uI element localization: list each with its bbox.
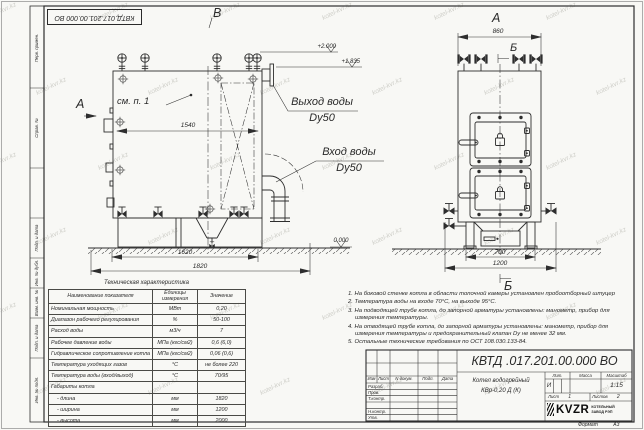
- hinge-icon: [525, 128, 530, 156]
- coil-icon: [547, 403, 554, 416]
- frame-field-perv-primen: Перв. примен.: [30, 8, 44, 88]
- dim-1820: 1820: [180, 264, 220, 271]
- format-label: Формат: [578, 422, 598, 428]
- inlet-label: Вход воды: [314, 147, 384, 158]
- dim-1620: 1620: [165, 250, 205, 257]
- bottom-valve-icons: [117, 207, 248, 218]
- company-name-line1: КОТЕЛЬНЫЙ: [591, 405, 614, 409]
- dim-860: 860: [478, 29, 518, 36]
- table-row: Температура воды (вход/выход)°С70/95: [49, 371, 246, 382]
- format-cell: Формат А3: [578, 423, 619, 428]
- rev-header-izm: Изм: [366, 377, 377, 381]
- scale-header: Масштаб: [601, 374, 632, 378]
- format-value: А3: [613, 422, 619, 428]
- frame-field-podp-data-1: Подп. и дата: [30, 218, 44, 258]
- inlet-elbow: [262, 154, 303, 222]
- frame-field-sprav-no: Справ. №: [30, 88, 44, 168]
- technical-notes: 1. На боковой стенке котла в области топ…: [348, 291, 638, 348]
- tech-table: Наименование показателя Единицы измерени…: [48, 289, 246, 427]
- dim-1540: 1540: [168, 123, 208, 130]
- col-header-name: Наименование показателя: [49, 290, 153, 304]
- table-row: - длинамм1820: [49, 393, 246, 404]
- sheets-cell: Листов 2: [592, 395, 620, 400]
- sheets-value: 2: [617, 394, 620, 400]
- view-label-a-side: А: [492, 12, 500, 25]
- elevation-plus-1835: +1.835: [320, 59, 360, 65]
- sheet-cell: Лист 1: [548, 395, 571, 400]
- company-name-line2: ЗАВОД РЭП: [591, 410, 614, 414]
- table-row: Диапазон рабочего регулирования%50-100: [49, 315, 246, 326]
- mass-header: Масса: [570, 374, 601, 378]
- sheet-value: 1: [568, 394, 571, 400]
- legs-and-ashpan: [464, 222, 537, 249]
- lower-door: [459, 168, 531, 218]
- upper-door: [459, 113, 531, 166]
- note-item: 4. На отводящей трубе котла, до запорной…: [348, 324, 638, 339]
- hinge-icon: [525, 183, 530, 211]
- table-row: Номинальная мощностьМВт0,20: [49, 304, 246, 315]
- sig-row-tkontr: Т.контр.: [368, 397, 385, 401]
- scale-value: 1:15: [601, 383, 632, 390]
- see-note-callout: см. п. 1: [117, 97, 149, 107]
- note-item: 3. На подводящей трубе котла, до запорно…: [348, 308, 638, 323]
- brace-panel: [221, 83, 254, 209]
- side-view: [444, 54, 557, 254]
- logo-text: KVZR: [556, 404, 589, 416]
- title-block-doc-number: КВТД .017.201.00.000 ВО: [458, 355, 631, 368]
- top-valve-icons: [118, 54, 261, 71]
- company-name: КОТЕЛЬНЫЙ ЗАВОД РЭП: [591, 405, 614, 414]
- col-header-units: Единицы измерения: [153, 290, 198, 304]
- elevation-zero: 0.000: [326, 238, 356, 244]
- outlet-size: Dy50: [294, 113, 350, 124]
- frame-field-podp-data-2: Подп. и дата: [30, 318, 44, 358]
- outlet-label: Выход воды: [286, 97, 358, 108]
- note-item: 1. На боковой стенке котла в области топ…: [348, 291, 638, 298]
- section-label-b-top: Б: [510, 43, 517, 54]
- view-label-v: В: [213, 7, 221, 20]
- lit-value: И: [545, 383, 553, 389]
- table-row: Температура уходящих газов°Сне более 220: [49, 359, 246, 370]
- tech-table-title: Техническая характеристика: [60, 280, 233, 286]
- stamp-text: КВТД.017.201.00.000 ВО: [48, 10, 141, 24]
- note-item: 2. Температура воды на входе 70°С, на вы…: [348, 299, 638, 306]
- table-row: - ширинамм1200: [49, 404, 246, 415]
- lit-header: Лит.: [545, 374, 570, 378]
- sig-row-razrab: Разраб.: [368, 385, 384, 389]
- sig-row-nkontr: Н.контр.: [368, 410, 386, 414]
- dim-1200: 1200: [478, 261, 522, 268]
- frame-field-inv-dubl: Инв. № дубл.: [30, 258, 44, 288]
- outlet-flange: [262, 64, 274, 86]
- inlet-size: Dy50: [322, 163, 376, 174]
- sheet-label: Лист: [548, 394, 559, 399]
- rev-header-list: Лист: [377, 377, 390, 381]
- product-name-line1: Котел водогрейный: [457, 378, 545, 384]
- tech-table-header: Наименование показателя Единицы измерени…: [49, 290, 246, 304]
- frame-field-vzam-inv: Взам. инв. №: [30, 288, 44, 318]
- company-logo: KVZR КОТЕЛЬНЫЙ ЗАВОД РЭП: [547, 403, 615, 416]
- rev-header-dokum: N докум.: [390, 377, 418, 381]
- dim-700: 700: [480, 250, 520, 257]
- view-label-a-front: А: [76, 98, 84, 111]
- table-row: Габариты котла: [49, 382, 246, 393]
- rev-header-podp: Подп.: [418, 377, 438, 381]
- table-row: - высотамм2000: [49, 415, 246, 426]
- col-header-value: Значение: [198, 290, 246, 304]
- drawing-sheet: kotel-kvr.kzkotel-kvr.kzkotel-kvr.kzkote…: [0, 0, 644, 430]
- table-row: Рабочее давление водыМПа (кгс/см2)0,6 (6…: [49, 337, 246, 348]
- base-frame: [118, 218, 262, 248]
- product-name-line2: КВр-0,20 Д (К): [457, 388, 545, 394]
- sig-row-utv: Утв.: [368, 416, 378, 420]
- note-item: 5. Остальные технические требования по О…: [348, 339, 638, 346]
- table-row: Расход водым3/ч7: [49, 326, 246, 337]
- elevation-plus-2000: +2.000: [296, 44, 336, 50]
- document-number-stamp: КВТД.017.201.00.000 ВО: [47, 9, 142, 25]
- rev-header-data: Дата: [438, 377, 457, 381]
- table-row: Гидравлическое сопротивление котлаМПа (к…: [49, 348, 246, 359]
- frame-field-inv-podl: Инв. № подл.: [30, 358, 44, 422]
- sheets-label: Листов: [592, 394, 608, 399]
- sig-row-prov: Пров.: [368, 391, 379, 395]
